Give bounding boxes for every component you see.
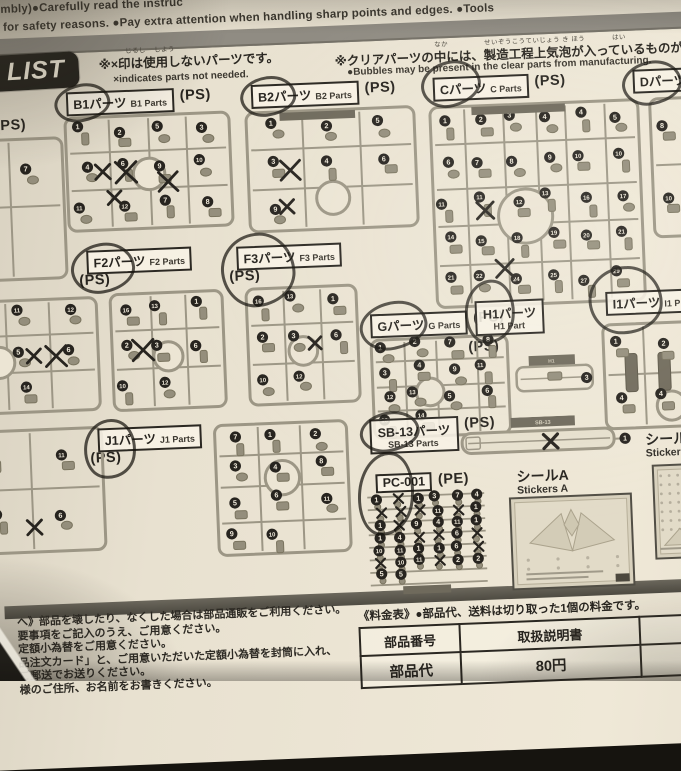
svg-text:5: 5 (447, 391, 451, 400)
svg-text:11: 11 (438, 202, 445, 208)
svg-text:19: 19 (551, 231, 559, 237)
svg-text:1: 1 (613, 337, 617, 346)
svg-text:3: 3 (584, 373, 588, 382)
svg-text:11: 11 (58, 453, 65, 459)
sticker-title-jp: シールB (645, 430, 681, 446)
svg-text:10: 10 (615, 151, 623, 157)
svg-text:5: 5 (613, 113, 617, 122)
runner-C-name-en: C Parts (490, 83, 522, 94)
runner-I1-name-en: I1 P (664, 298, 680, 309)
svg-text:11: 11 (397, 548, 404, 554)
runner-j1-diagram: 7123485611910 (210, 416, 356, 565)
svg-text:9: 9 (548, 153, 552, 162)
svg-text:2: 2 (125, 341, 129, 350)
svg-text:27: 27 (580, 278, 588, 284)
svg-text:16: 16 (583, 195, 591, 201)
svg-text:6: 6 (446, 157, 450, 166)
parts-list-badge: LIST (0, 54, 80, 88)
svg-text:10: 10 (196, 158, 204, 164)
price-table-cell: 部品番号 (359, 624, 460, 656)
runner-a-diagram: 13710 (0, 133, 72, 289)
runner-f2-diagram: 161312361012 (106, 286, 231, 420)
svg-text:8: 8 (660, 121, 664, 130)
runner-B2-name-en: B2 Parts (315, 90, 352, 101)
svg-text:5: 5 (375, 116, 379, 125)
svg-text:11: 11 (435, 509, 442, 515)
svg-text:H1: H1 (548, 359, 555, 365)
svg-text:4: 4 (85, 162, 89, 171)
svg-text:11: 11 (416, 557, 423, 563)
svg-text:1: 1 (474, 515, 478, 524)
runner-b2-diagram: 1253469 (242, 102, 423, 241)
svg-text:11: 11 (76, 206, 83, 212)
svg-text:10: 10 (259, 378, 267, 384)
photo-of-instruction-sheet: mbly)●Carefully read the instruc for saf… (0, 0, 681, 771)
svg-text:4: 4 (620, 393, 624, 402)
svg-text:1: 1 (416, 494, 420, 503)
svg-text:2: 2 (456, 555, 460, 564)
svg-text:4: 4 (579, 107, 583, 116)
svg-text:5: 5 (380, 569, 384, 578)
svg-text:11: 11 (14, 308, 21, 314)
svg-text:16: 16 (122, 308, 130, 314)
svg-text:5: 5 (233, 498, 237, 507)
svg-text:1: 1 (416, 544, 420, 553)
svg-text:6: 6 (334, 330, 338, 339)
svg-text:5: 5 (399, 570, 403, 579)
svg-text:4: 4 (475, 489, 479, 498)
svg-text:6: 6 (274, 490, 278, 499)
svg-text:6: 6 (66, 345, 70, 354)
runner-SB-material: (PS) (464, 414, 496, 431)
svg-text:6: 6 (485, 386, 489, 395)
svg-text:10: 10 (119, 384, 127, 390)
runner-e1-diagram: 161112456714 (0, 293, 105, 423)
sticker-sheet-sta (508, 492, 636, 596)
price-table-cell: 部品代 (361, 652, 462, 688)
svg-text:8: 8 (319, 456, 323, 465)
svg-text:12: 12 (67, 308, 75, 314)
svg-text:3: 3 (233, 461, 237, 470)
runner-J1-name-en: J1 Parts (160, 434, 195, 445)
svg-text:4: 4 (659, 389, 663, 398)
sticker-title-en: Stickers A (517, 482, 570, 498)
svg-text:3: 3 (271, 157, 275, 166)
svg-text:6: 6 (194, 341, 198, 350)
svg-text:3: 3 (432, 491, 436, 500)
svg-text:13: 13 (287, 294, 295, 300)
svg-text:21: 21 (448, 275, 456, 281)
svg-text:8: 8 (509, 157, 513, 166)
svg-text:12: 12 (387, 395, 395, 401)
svg-text:13: 13 (151, 304, 159, 310)
svg-text:3: 3 (199, 123, 203, 132)
runner-G-name-en: G Parts (428, 320, 460, 331)
runner-F3-name-en: F3 Parts (299, 252, 335, 263)
svg-text:4: 4 (273, 462, 277, 471)
svg-text:1: 1 (75, 122, 79, 131)
runner-B1-material: (PS) (179, 87, 211, 104)
svg-text:3: 3 (291, 331, 295, 340)
price-table-cell: 80円 (461, 645, 642, 684)
svg-text:9: 9 (273, 205, 277, 214)
svg-text:14: 14 (447, 235, 455, 241)
furigana: なか (434, 38, 448, 49)
svg-text:SB-13: SB-13 (535, 420, 551, 427)
svg-text:7: 7 (23, 164, 27, 173)
svg-text:4: 4 (542, 112, 546, 121)
svg-text:6: 6 (58, 511, 62, 520)
svg-text:2: 2 (324, 121, 328, 130)
svg-text:10: 10 (269, 532, 277, 538)
svg-text:1: 1 (474, 502, 478, 511)
svg-text:2: 2 (313, 429, 317, 438)
svg-text:7: 7 (233, 432, 237, 441)
svg-text:1: 1 (268, 430, 272, 439)
svg-text:3: 3 (155, 341, 159, 350)
svg-text:12: 12 (162, 381, 170, 387)
svg-text:1: 1 (437, 543, 441, 552)
runner-F2-name-en: F2 Parts (149, 256, 185, 267)
svg-text:6: 6 (382, 154, 386, 163)
svg-text:4: 4 (397, 533, 401, 542)
svg-text:11: 11 (476, 195, 483, 201)
svg-text:10: 10 (397, 560, 405, 566)
svg-text:11: 11 (324, 497, 331, 503)
svg-text:13: 13 (542, 191, 550, 197)
svg-text:9: 9 (157, 161, 161, 170)
top-caution-line-1: mbly)●Carefully read the instruc (0, 0, 183, 16)
runner-B2-material: (PS) (364, 79, 396, 96)
svg-text:5: 5 (16, 348, 20, 357)
svg-text:21: 21 (618, 229, 626, 235)
furigana: じるし (125, 44, 146, 55)
svg-text:7: 7 (163, 195, 167, 204)
price-table-cell: シール類 (639, 608, 681, 644)
svg-text:7: 7 (448, 337, 452, 346)
svg-text:15: 15 (478, 239, 486, 245)
svg-text:2: 2 (260, 332, 264, 341)
svg-text:9: 9 (230, 529, 234, 538)
svg-text:11: 11 (454, 520, 461, 526)
svg-text:14: 14 (23, 385, 31, 391)
order-notes-block: へ》部品を壊したり、なくした場合は部品通販をご利用ください。要事項をご記入のうえ… (17, 604, 350, 698)
runner-b1-diagram: 125346910111278 (61, 108, 238, 241)
svg-text:12: 12 (516, 200, 524, 206)
svg-text:22: 22 (476, 274, 484, 280)
svg-text:4: 4 (417, 360, 421, 369)
svg-text:10: 10 (575, 154, 583, 160)
svg-text:1: 1 (331, 294, 335, 303)
furigana: はい (612, 31, 626, 42)
svg-text:2: 2 (661, 339, 665, 348)
svg-text:20: 20 (583, 233, 591, 239)
sheet-content: mbly)●Carefully read the instruc for saf… (0, 0, 681, 759)
svg-text:11: 11 (477, 363, 484, 369)
sticker-title-en: Stickers (645, 444, 681, 460)
svg-text:17: 17 (620, 194, 628, 200)
sticker-sheet-sta-title: シールAStickers A (516, 468, 569, 498)
svg-text:4: 4 (436, 517, 440, 526)
svg-text:2: 2 (476, 554, 480, 563)
runner-A-material: (PS) (0, 117, 26, 134)
svg-text:2: 2 (479, 115, 483, 124)
svg-text:12: 12 (121, 204, 129, 210)
svg-text:8: 8 (205, 197, 209, 206)
svg-text:6: 6 (454, 541, 458, 550)
svg-text:3: 3 (383, 368, 387, 377)
svg-text:1: 1 (269, 119, 273, 128)
svg-text:1: 1 (194, 297, 198, 306)
svg-text:5: 5 (155, 121, 159, 130)
runner-PC-material: (PE) (438, 471, 470, 488)
sticker-sheet-stb-title: シールBStickers (645, 430, 681, 460)
svg-text:9: 9 (452, 364, 456, 373)
sticker-sheet-stb (651, 462, 681, 565)
runner-B1-name-en: B1 Parts (130, 97, 167, 108)
svg-text:10: 10 (376, 549, 384, 555)
svg-text:18: 18 (514, 236, 522, 242)
runner-h1-diagram: H13 (512, 352, 598, 400)
svg-text:7: 7 (475, 158, 479, 167)
svg-text:9: 9 (414, 519, 418, 528)
svg-text:2: 2 (117, 128, 121, 137)
furigana: しよう (154, 43, 175, 54)
runner-C-material: (PS) (534, 72, 566, 89)
svg-text:1: 1 (443, 116, 447, 125)
svg-text:6: 6 (455, 528, 459, 537)
runner-d-diagram: 8910 (645, 92, 681, 246)
svg-text:12: 12 (296, 374, 304, 380)
svg-text:10: 10 (665, 196, 673, 202)
svg-text:4: 4 (324, 156, 328, 165)
svg-text:25: 25 (550, 273, 558, 279)
svg-text:7: 7 (455, 490, 459, 499)
unused-parts-note-jp: じるししよう ※×印は使用しないパーツです。 (98, 47, 279, 73)
svg-text:13: 13 (409, 390, 417, 396)
svg-text:1: 1 (623, 433, 627, 442)
